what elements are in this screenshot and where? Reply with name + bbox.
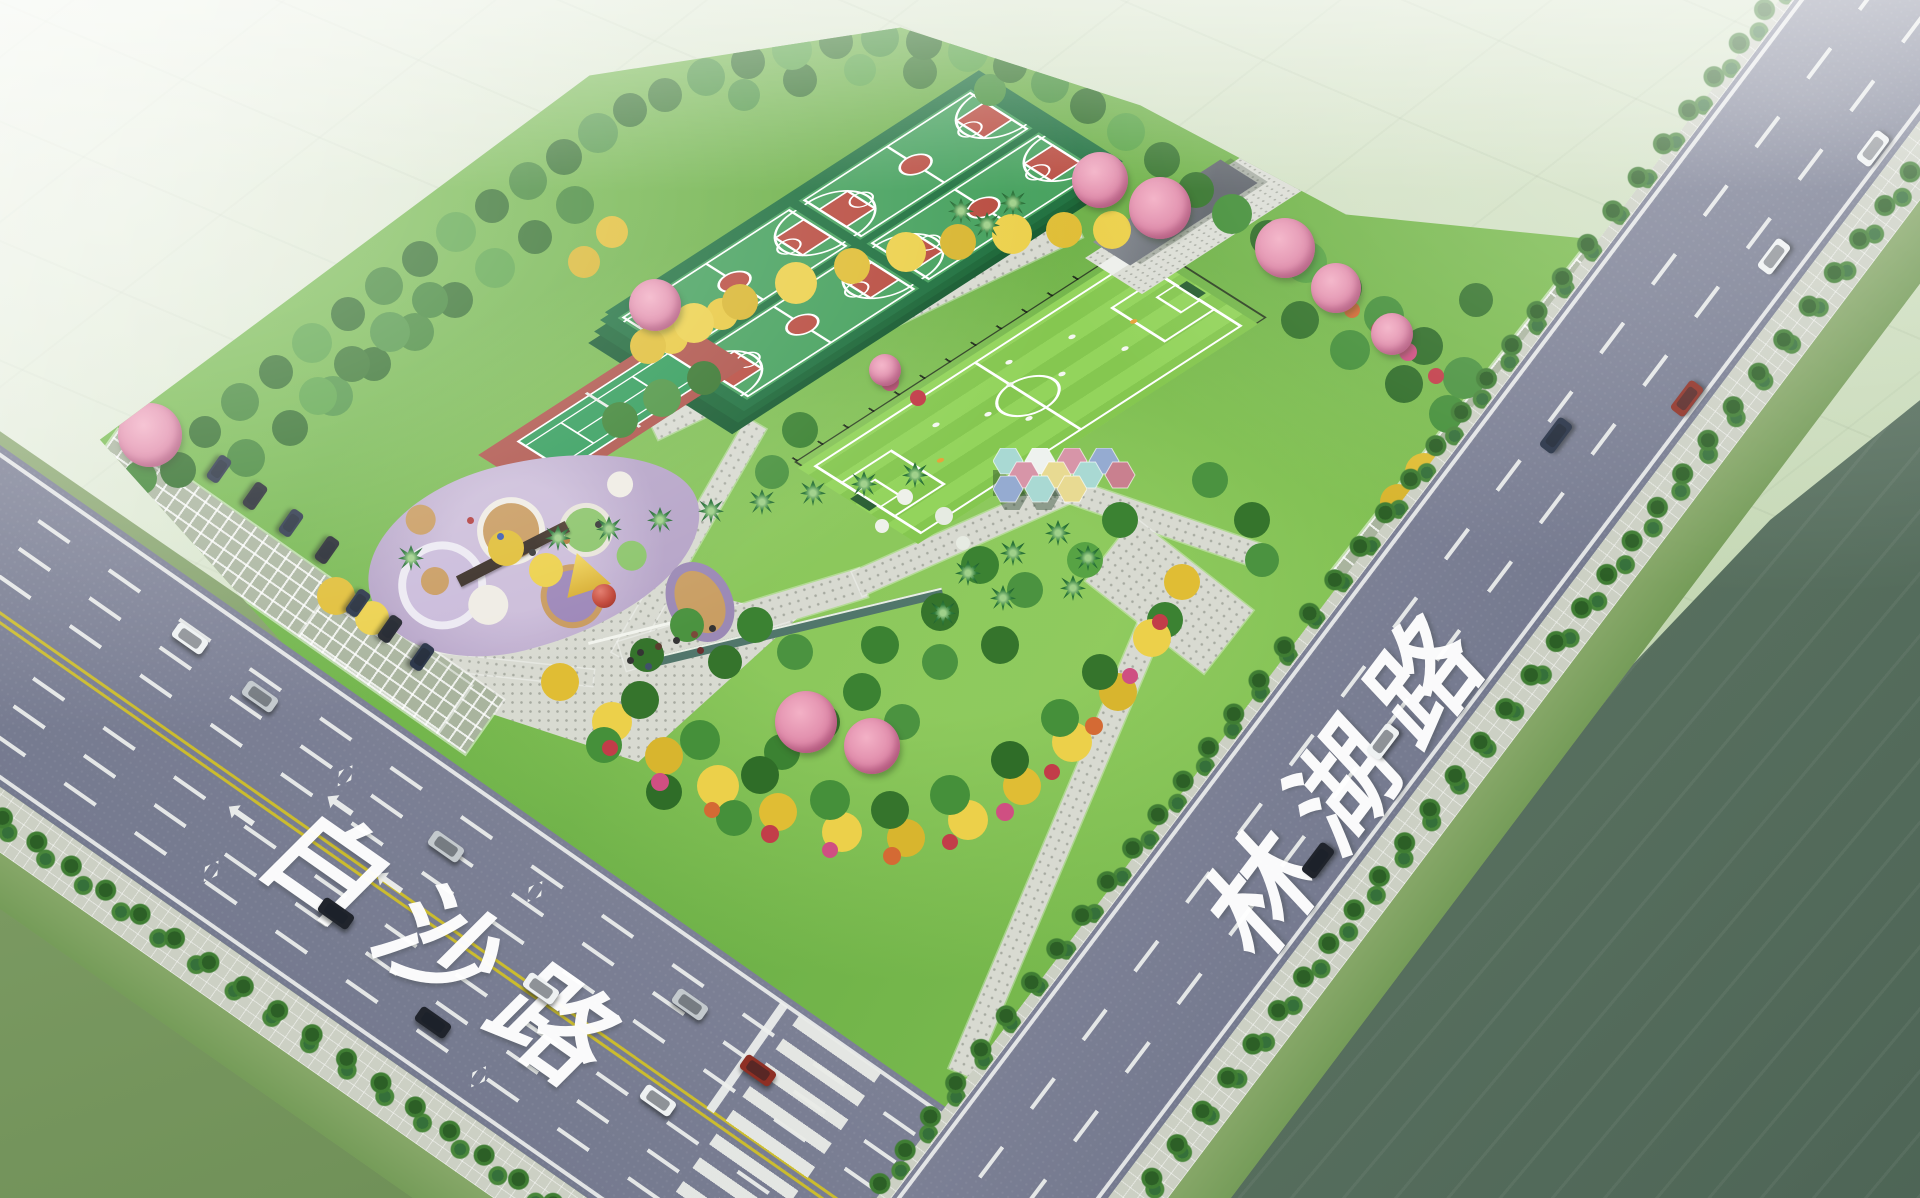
pink-blossom-tree — [1371, 313, 1413, 355]
pink-blossom-tree — [1255, 218, 1315, 278]
play-circle — [613, 538, 649, 574]
tree-cluster-south — [0, 0, 10, 10]
pink-blossom-tree — [869, 354, 901, 386]
pink-blossom-tree — [629, 279, 681, 331]
parked-car — [277, 508, 305, 539]
park-aerial-rendering: 白沙路 林湖路 — [0, 0, 1920, 1198]
palm-tree — [749, 489, 775, 515]
flower-beds — [0, 0, 4, 4]
parked-car — [205, 454, 233, 485]
palm-tree — [955, 560, 981, 586]
red-play-dome — [592, 584, 616, 608]
pink-blossom-tree — [844, 718, 900, 774]
tree-cluster-north — [0, 0, 10, 10]
tree-cluster-northeast — [0, 0, 10, 10]
palm-tree — [990, 585, 1016, 611]
tree-cluster-northwest — [0, 0, 10, 10]
pink-blossom-tree — [775, 691, 837, 753]
parked-car — [241, 481, 269, 512]
white-sculptures — [0, 0, 4, 4]
play-circle — [604, 469, 636, 501]
palm-tree — [930, 600, 956, 626]
tree-cluster-golden — [0, 0, 10, 10]
play-circle — [402, 502, 438, 538]
pink-blossom-tree — [118, 403, 182, 467]
palm-tree — [1060, 575, 1086, 601]
tree-cluster-interior — [0, 0, 10, 10]
honeycomb-canopy — [993, 448, 1143, 558]
pink-blossom-tree — [1129, 177, 1191, 239]
parked-car — [313, 535, 341, 566]
pink-blossom-tree — [1072, 152, 1128, 208]
pink-blossom-tree — [1311, 263, 1361, 313]
park-visitors — [0, 0, 3, 3]
